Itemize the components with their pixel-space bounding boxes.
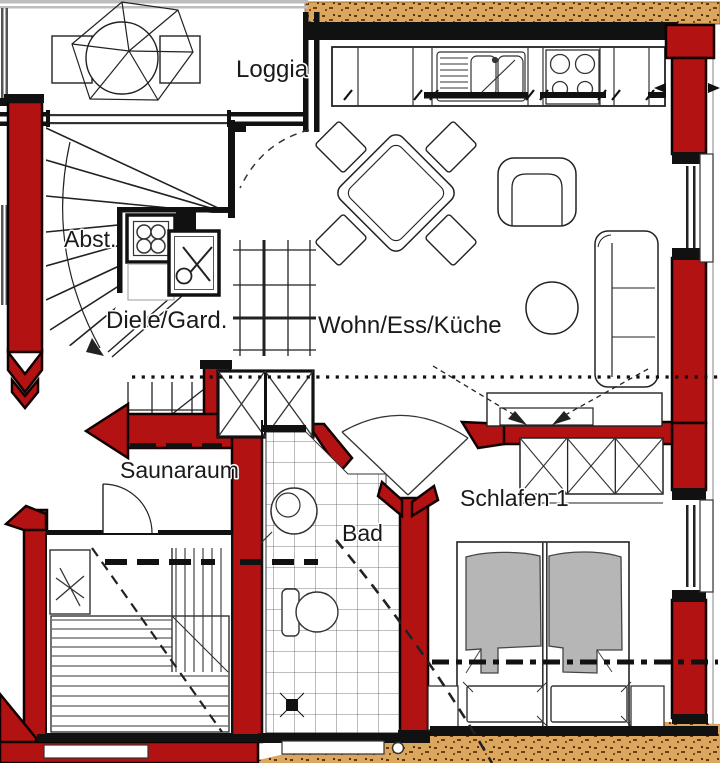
sofa [595,231,658,387]
boiler-box [169,231,219,295]
nightstand-right [631,686,664,730]
kitchen-exterior-wall [305,22,678,40]
hall-wall-cap [200,360,232,369]
room-label-bad: Bad [342,520,383,546]
right-wall [666,25,714,718]
kitchen-counter [332,47,666,106]
threshold-dashes [130,443,222,449]
loggia-table [86,22,158,94]
left-wall-cap [4,94,44,103]
room-label-sauna: Saunaraum [120,457,239,483]
abst-cabinet [128,264,174,300]
sauna-heater [50,550,90,614]
room-label-wohn: Wohn/Ess/Küche [318,312,502,339]
wall-cap [398,730,430,739]
side-table [526,282,578,334]
room-label-abst: Abst. [64,226,116,252]
room-label-schlafen: Schlafen 1 [460,485,569,511]
room-label-loggia: Loggia [236,56,309,83]
floorplan-canvas: Loggia Abst. Diele/Gard. Wohn/Ess/Küche … [0,0,720,763]
nightstand-left [428,686,458,730]
room-label-diele: Diele/Gard. [106,307,227,334]
double-bed [428,542,664,732]
door-handle-symbol [393,743,404,754]
floor-plan: Loggia Abst. Diele/Gard. Wohn/Ess/Küche … [0,0,720,763]
dining-set [315,121,477,266]
bath-tiles [266,432,400,733]
loggia-chair-right [160,36,200,83]
armchair [498,158,576,226]
